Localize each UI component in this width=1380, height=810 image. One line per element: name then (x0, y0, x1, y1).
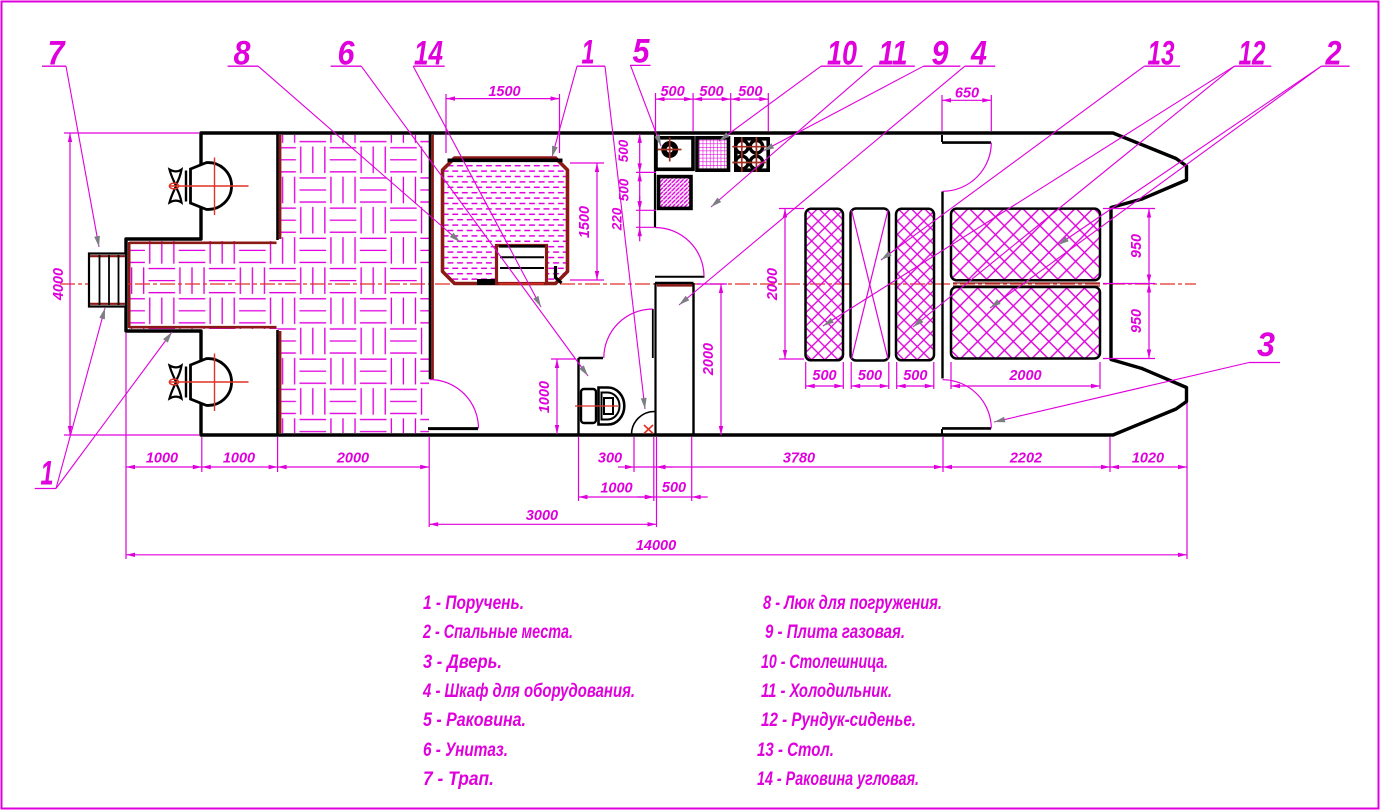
svg-text:500: 500 (616, 139, 631, 162)
svg-text:6 - Унитаз.: 6 - Унитаз. (423, 739, 508, 761)
svg-text:7 - Трап.: 7 - Трап. (423, 768, 494, 790)
svg-text:500: 500 (738, 84, 762, 100)
svg-text:1000: 1000 (537, 381, 553, 413)
svg-text:8 - Люк для погружения.: 8 - Люк для погружения. (763, 592, 942, 614)
svg-text:950: 950 (1129, 234, 1145, 258)
svg-text:9 - Плита газовая.: 9 - Плита газовая. (765, 621, 905, 643)
svg-text:4 - Шкаф для оборудования.: 4 - Шкаф для оборудования. (422, 680, 635, 702)
svg-text:950: 950 (1129, 309, 1145, 333)
svg-text:12 - Рундук-сиденье.: 12 - Рундук-сиденье. (761, 709, 916, 731)
svg-text:500: 500 (660, 84, 684, 100)
svg-text:300: 300 (598, 451, 622, 467)
svg-text:650: 650 (955, 85, 979, 101)
svg-text:10 - Столешница.: 10 - Столешница. (761, 651, 888, 673)
svg-text:2 - Спальные места.: 2 - Спальные места. (422, 621, 573, 643)
svg-text:500: 500 (858, 368, 882, 384)
svg-text:500: 500 (662, 480, 686, 496)
svg-text:500: 500 (903, 368, 927, 384)
svg-text:3 - Дверь.: 3 - Дверь. (423, 651, 502, 673)
svg-text:3780: 3780 (783, 451, 815, 467)
svg-text:1: 1 (41, 455, 54, 493)
svg-text:2202: 2202 (1009, 451, 1042, 467)
svg-text:1500: 1500 (577, 206, 593, 238)
svg-text:3: 3 (1257, 326, 1275, 364)
svg-text:2000: 2000 (336, 451, 369, 467)
svg-text:1000: 1000 (146, 451, 178, 467)
svg-text:1020: 1020 (1132, 451, 1164, 467)
svg-text:5 - Раковина.: 5 - Раковина. (423, 709, 526, 731)
svg-text:13 - Стол.: 13 - Стол. (757, 739, 834, 761)
svg-text:500: 500 (812, 368, 836, 384)
svg-text:14000: 14000 (636, 538, 676, 554)
svg-text:1 - Поручень.: 1 - Поручень. (423, 592, 524, 614)
svg-text:500: 500 (699, 84, 723, 100)
svg-text:2000: 2000 (765, 268, 781, 301)
svg-text:1000: 1000 (223, 451, 255, 467)
svg-text:2000: 2000 (701, 343, 717, 376)
svg-text:1000: 1000 (600, 481, 632, 497)
svg-text:14 - Раковина угловая.: 14 - Раковина угловая. (757, 768, 919, 790)
svg-text:3000: 3000 (526, 508, 558, 524)
svg-text:11 - Холодильник.: 11 - Холодильник. (761, 680, 892, 702)
svg-text:4000: 4000 (51, 268, 67, 301)
svg-text:1500: 1500 (488, 84, 520, 100)
svg-text:2000: 2000 (1008, 368, 1041, 384)
